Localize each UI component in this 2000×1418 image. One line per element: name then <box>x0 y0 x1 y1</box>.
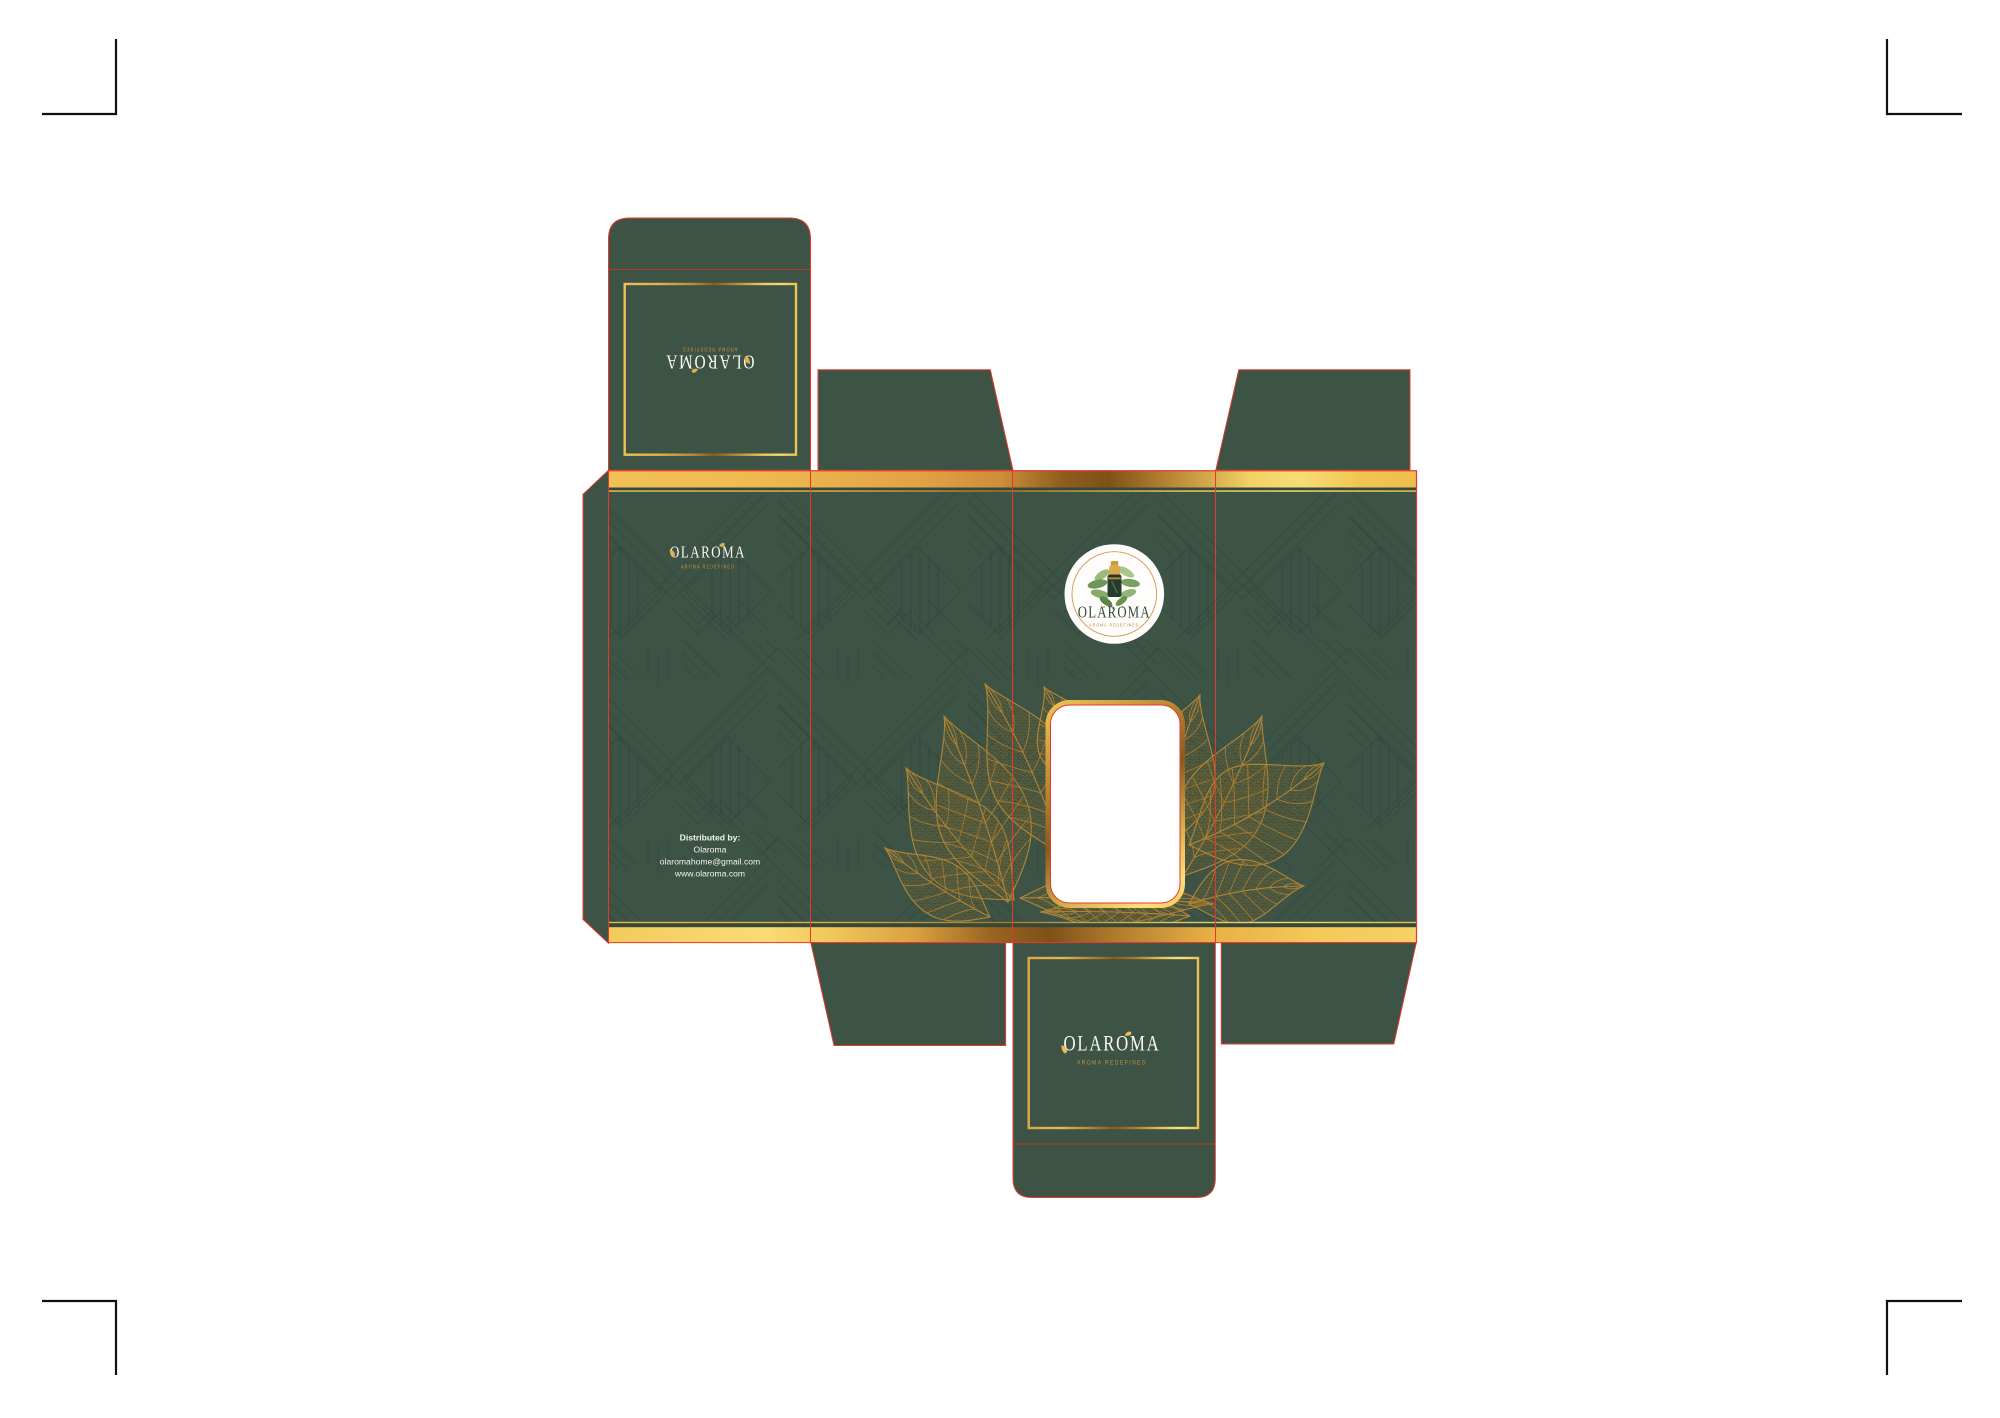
svg-text:www.olaroma.com: www.olaroma.com <box>674 869 745 879</box>
svg-text:OLAROMA: OLAROMA <box>665 351 755 372</box>
svg-text:AROMA REDEFINED: AROMA REDEFINED <box>1089 623 1139 628</box>
svg-text:AROMA REDEFINED: AROMA REDEFINED <box>1077 1060 1147 1066</box>
svg-text:OLAROMA: OLAROMA <box>670 543 746 562</box>
svg-text:AROMA REDEFINED: AROMA REDEFINED <box>682 346 738 352</box>
svg-text:Distributed by:: Distributed by: <box>680 833 741 843</box>
svg-text:OLAROMA: OLAROMA <box>1064 1031 1161 1056</box>
svg-text:OLAROMA: OLAROMA <box>1078 603 1151 622</box>
svg-text:olaromahome@gmail.com: olaromahome@gmail.com <box>660 857 760 867</box>
svg-text:AROMA REDEFINED: AROMA REDEFINED <box>681 564 735 570</box>
svg-text:Olaroma: Olaroma <box>694 845 727 855</box>
